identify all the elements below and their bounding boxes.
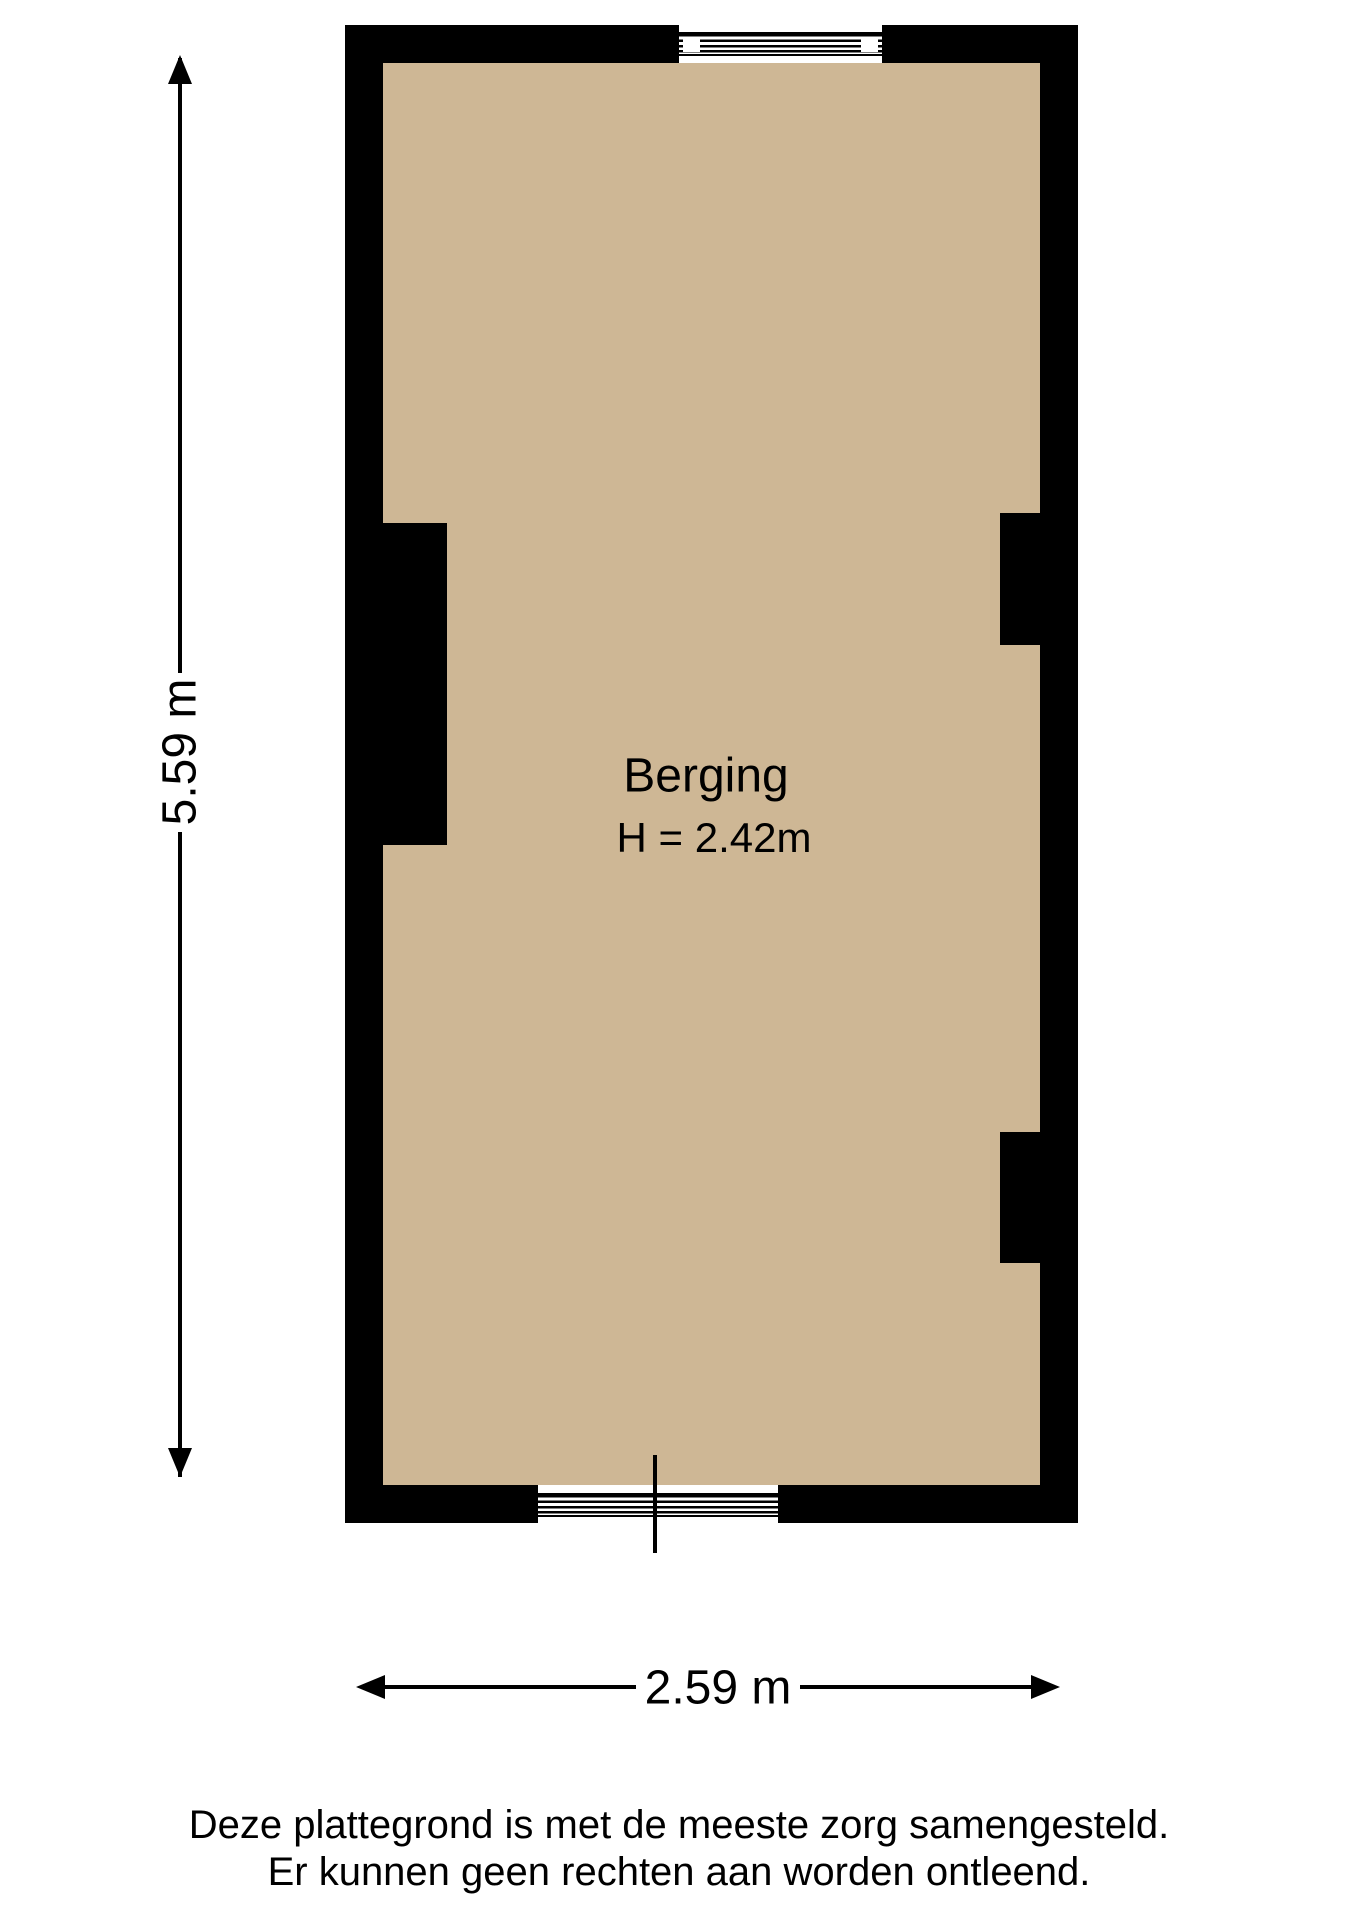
vertical-dimension-line-upper (178, 58, 182, 673)
room-height-label: H = 2.42m (617, 814, 812, 862)
wall-niche-right-upper (1000, 513, 1078, 645)
horizontal-dimension-line-right (800, 1685, 1034, 1689)
disclaimer-line-2: Er kunnen geen rechten aan worden ontlee… (0, 1849, 1358, 1896)
horizontal-dimension-line-left (382, 1685, 636, 1689)
vertical-dimension-line-lower (178, 832, 182, 1477)
dimension-arrowhead-down-icon (168, 1448, 192, 1477)
floorplan-canvas: Berging H = 2.42m 5.59 m 2.59 m Deze pla… (0, 0, 1358, 1920)
horizontal-dimension-label: 2.59 m (645, 1661, 792, 1716)
window-bottom-glazing-icon (538, 1493, 778, 1517)
dimension-arrowhead-up-icon (168, 55, 192, 84)
dimension-arrowhead-left-icon (356, 1675, 385, 1699)
window-bottom-post-line (653, 1455, 657, 1553)
disclaimer-line-1: Deze plattegrond is met de meeste zorg s… (0, 1802, 1358, 1849)
window-top-glazing-icon (679, 32, 882, 56)
window-top-post-right (861, 37, 878, 52)
room-label: Berging (623, 749, 788, 804)
wall-niche-right-lower (1000, 1132, 1078, 1263)
disclaimer: Deze plattegrond is met de meeste zorg s… (0, 1802, 1358, 1896)
window-top-post-left (683, 37, 700, 52)
wall-niche-left (345, 523, 447, 845)
vertical-dimension-label: 5.59 m (153, 679, 208, 826)
dimension-arrowhead-right-icon (1031, 1675, 1060, 1699)
